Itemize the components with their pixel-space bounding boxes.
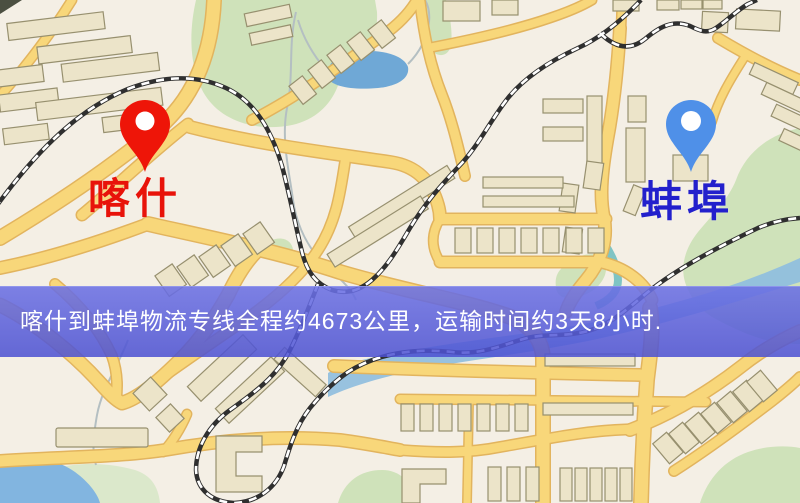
map-canvas	[0, 0, 800, 503]
destination-city-label: 蚌埠	[640, 181, 734, 223]
origin-city-label: 喀什	[88, 178, 182, 220]
logistics-map-image: 喀什 蚌埠 喀什到蚌埠物流专线全程约4673公里，运输时间约3天8小时.	[0, 0, 800, 503]
route-info-text: 喀什到蚌埠物流专线全程约4673公里，运输时间约3天8小时.	[0, 286, 800, 357]
route-info-banner: 喀什到蚌埠物流专线全程约4673公里，运输时间约3天8小时.	[0, 286, 800, 357]
